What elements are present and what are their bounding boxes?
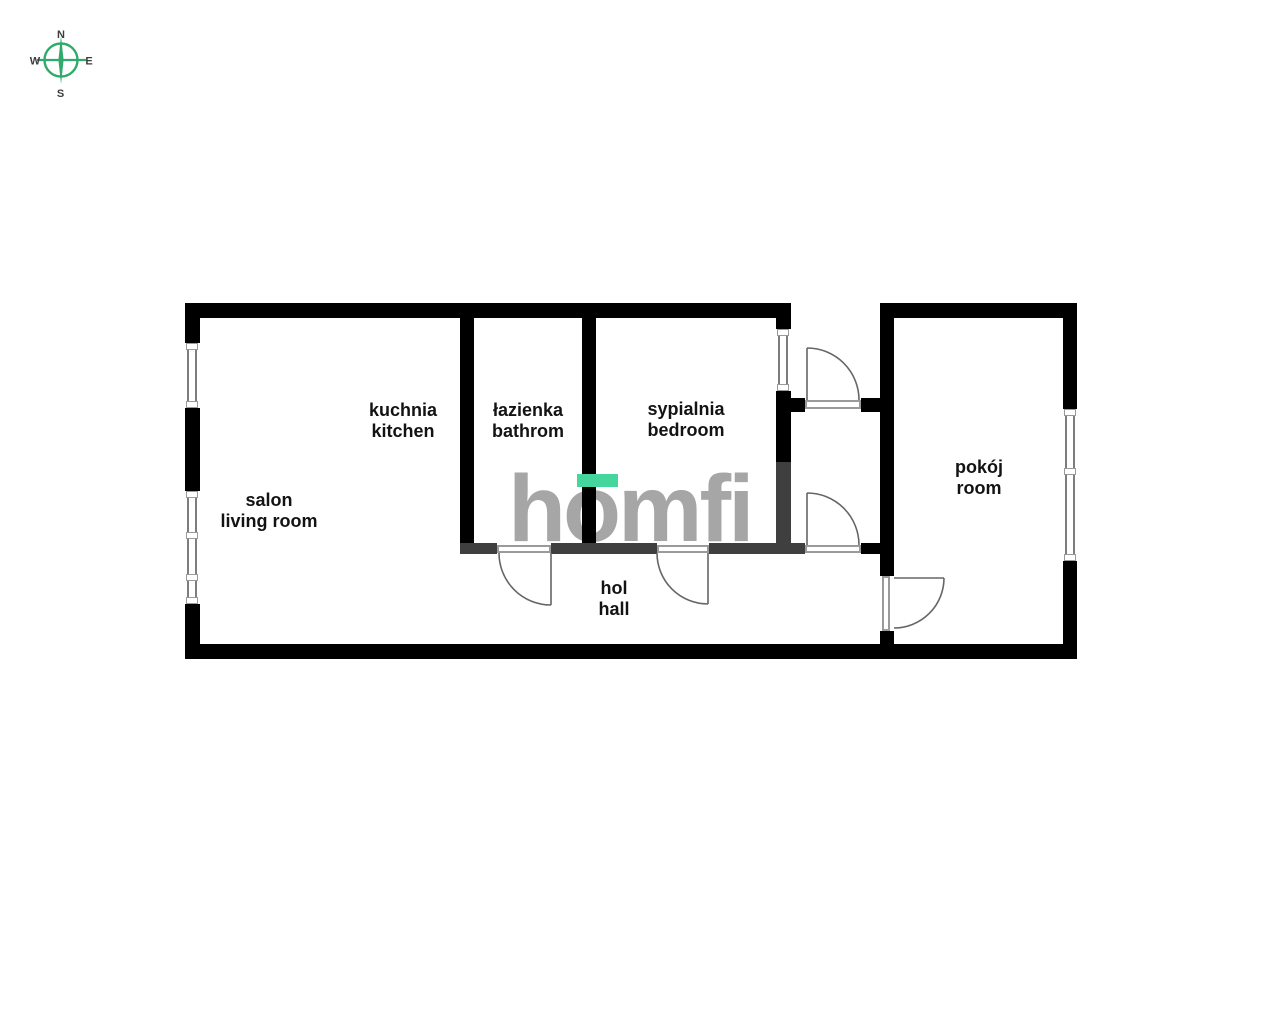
room-name-pl: kuchnia <box>369 400 437 421</box>
compass-south-label: S <box>57 88 64 100</box>
compass-east-label: E <box>85 56 92 68</box>
compass-north-label: N <box>57 29 65 41</box>
room-label-room: pokój room <box>955 457 1003 499</box>
floorplan-canvas: N W E S homfi <box>0 0 1280 1021</box>
door-swings-layer <box>0 0 1280 1021</box>
room-label-bedroom: sypialnia bedroom <box>647 399 724 441</box>
room-name-pl: łazienka <box>492 400 564 421</box>
balcony-door <box>807 348 859 400</box>
room-door <box>894 578 944 628</box>
compass-rose: N W E S <box>18 16 110 108</box>
room-label-bathroom: łazienka bathrom <box>492 400 564 442</box>
compass-west-label: W <box>30 56 41 68</box>
room-name-pl: salon <box>220 490 317 511</box>
room-name-en: bedroom <box>647 420 724 441</box>
bathroom-door <box>499 553 551 605</box>
room-name-en: bathrom <box>492 421 564 442</box>
room-label-kitchen: kuchnia kitchen <box>369 400 437 442</box>
room-label-living-room: salon living room <box>220 490 317 532</box>
homfi-logo-accent-dash <box>577 474 618 487</box>
room-name-en: kitchen <box>369 421 437 442</box>
room-name-en: living room <box>220 511 317 532</box>
room-name-pl: sypialnia <box>647 399 724 420</box>
bedroom-door <box>657 553 708 604</box>
room-name-pl: hol <box>598 578 629 599</box>
room-name-en: room <box>955 478 1003 499</box>
room-name-en: hall <box>598 599 629 620</box>
room-name-pl: pokój <box>955 457 1003 478</box>
corridor-door <box>807 493 859 545</box>
room-label-hall: hol hall <box>598 578 629 620</box>
